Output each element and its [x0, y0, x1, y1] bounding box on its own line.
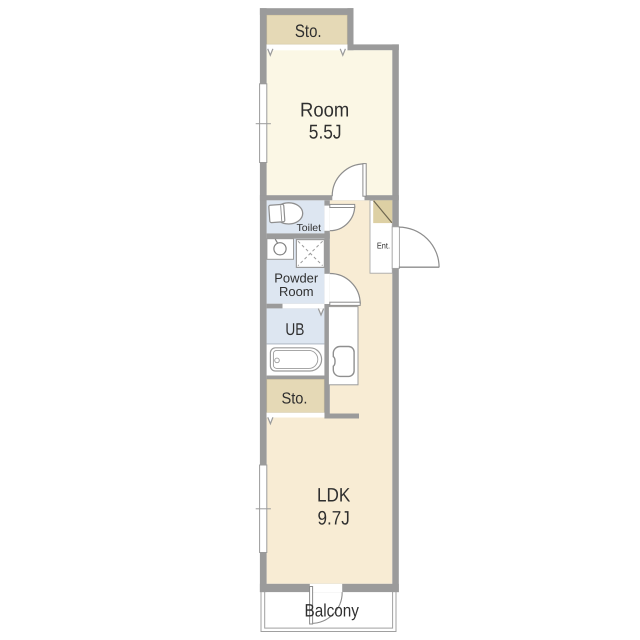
svg-text:Sto.: Sto.	[295, 21, 322, 41]
svg-text:Room: Room	[279, 284, 314, 299]
svg-text:LDK: LDK	[317, 485, 350, 507]
svg-text:5.5J: 5.5J	[309, 122, 342, 144]
svg-text:Ent.: Ent.	[377, 241, 390, 251]
svg-text:Sto.: Sto.	[282, 390, 308, 407]
svg-text:UB: UB	[285, 320, 304, 339]
svg-text:9.7J: 9.7J	[318, 508, 350, 530]
svg-text:Toilet: Toilet	[297, 223, 322, 234]
svg-text:Room: Room	[300, 100, 349, 122]
svg-text:Balcony: Balcony	[305, 601, 359, 621]
